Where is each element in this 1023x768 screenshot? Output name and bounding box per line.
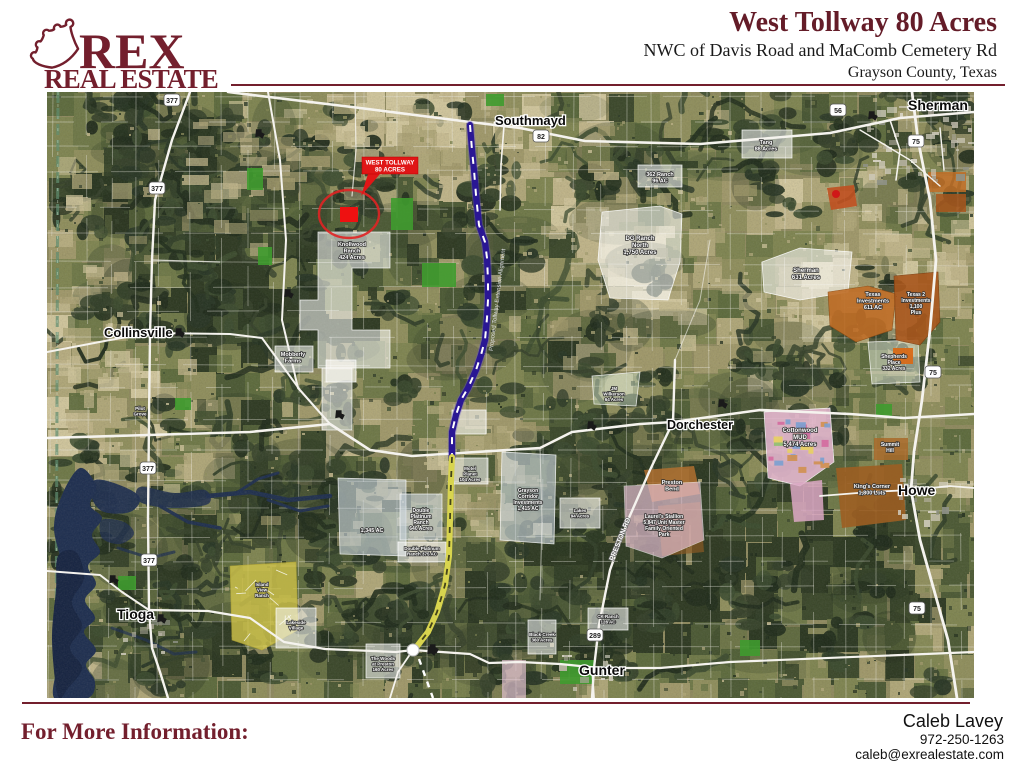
svg-text:Southmayd: Southmayd	[495, 113, 566, 128]
svg-text:The Woodsat Preston160 Acres: The Woodsat Preston160 Acres	[371, 656, 396, 672]
svg-text:75: 75	[929, 370, 937, 377]
svg-text:Black Creek360 Acres: Black Creek360 Acres	[529, 632, 555, 643]
svg-text:56: 56	[834, 108, 842, 115]
svg-text:289: 289	[589, 633, 601, 640]
svg-text:Tioga: Tioga	[117, 606, 154, 622]
svg-text:Gunter: Gunter	[579, 662, 625, 678]
svg-text:WEST TOLLWAY: WEST TOLLWAY	[366, 160, 416, 167]
svg-text:Howe: Howe	[898, 482, 936, 498]
svg-text:IslandViewRanch: IslandViewRanch	[255, 582, 269, 598]
svg-text:82: 82	[537, 134, 545, 141]
svg-text:377: 377	[142, 466, 154, 473]
svg-text:1,345 AC: 1,345 AC	[360, 528, 383, 534]
svg-text:Double PlatinumRanch 375 AC: Double PlatinumRanch 375 AC	[404, 546, 440, 557]
svg-text:377: 377	[166, 98, 178, 105]
svg-text:377: 377	[143, 558, 155, 565]
svg-text:Collinsville: Collinsville	[104, 325, 173, 340]
svg-text:80 ACRES: 80 ACRES	[375, 167, 405, 174]
svg-text:LakesideVillage: LakesideVillage	[286, 620, 306, 631]
svg-text:King's Corner1,800 Lots: King's Corner1,800 Lots	[854, 484, 891, 497]
svg-text:75: 75	[912, 139, 920, 146]
svg-text:377: 377	[151, 186, 163, 193]
svg-text:Sherman631 Acres: Sherman631 Acres	[792, 268, 821, 281]
svg-text:Sherman: Sherman	[908, 97, 968, 113]
svg-text:Dorchester: Dorchester	[667, 418, 733, 432]
svg-text:75: 75	[913, 606, 921, 613]
